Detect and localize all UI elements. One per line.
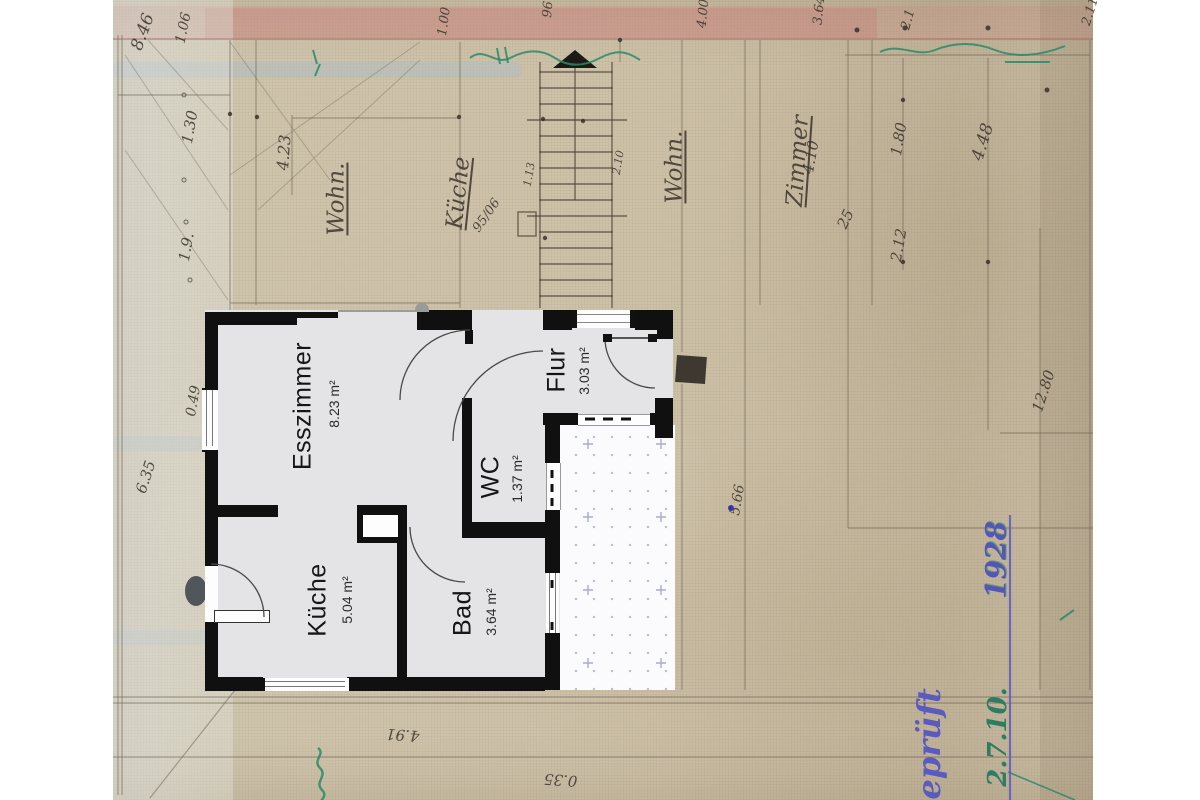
room-area-esszimmer: 8.23 m² — [326, 380, 342, 427]
room-name-bad: Bad — [449, 590, 478, 636]
room-area-kueche: 5.04 m² — [339, 576, 355, 623]
room-name-kueche: Küche — [304, 563, 333, 636]
terrace-plus-marks — [583, 439, 666, 668]
room-name-wc: WC — [477, 456, 506, 499]
room-area-wc: 1.37 m² — [509, 455, 525, 502]
window-dashes — [552, 419, 631, 630]
room-area-flur: 3.03 m² — [576, 347, 592, 394]
blueprint-canvas: { "floor_plan": { "rooms": [ {"id":"essz… — [0, 0, 1200, 800]
room-name-flur: Flur — [543, 347, 572, 392]
room-area-bad: 3.64 m² — [483, 588, 499, 635]
room-name-esszimmer: Esszimmer — [289, 342, 318, 470]
